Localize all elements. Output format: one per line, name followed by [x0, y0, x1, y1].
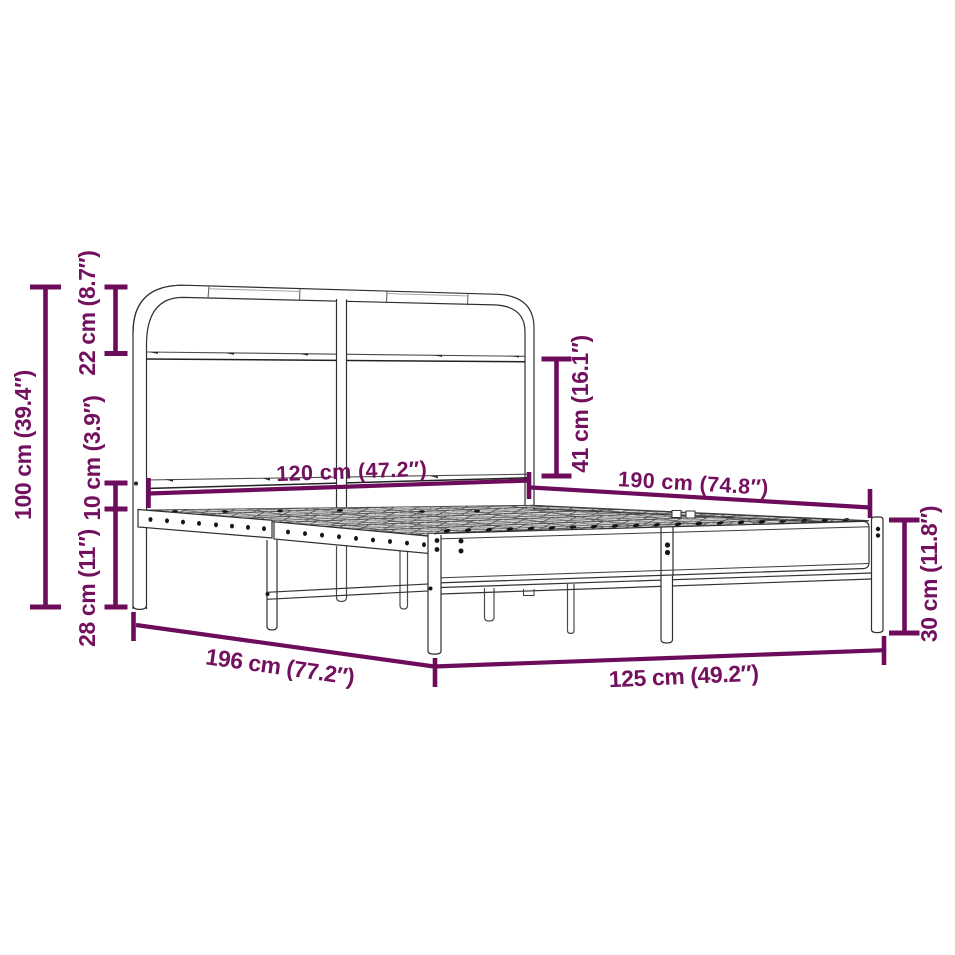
svg-text:22 cm (8.7″): 22 cm (8.7″): [74, 250, 100, 375]
svg-text:28 cm (11″): 28 cm (11″): [74, 529, 100, 647]
svg-text:100 cm (39.4″): 100 cm (39.4″): [10, 370, 36, 520]
svg-text:30 cm (11.8″): 30 cm (11.8″): [916, 506, 942, 642]
svg-text:10 cm (3.9″): 10 cm (3.9″): [79, 395, 105, 520]
svg-text:41 cm (16.1″): 41 cm (16.1″): [567, 335, 593, 473]
